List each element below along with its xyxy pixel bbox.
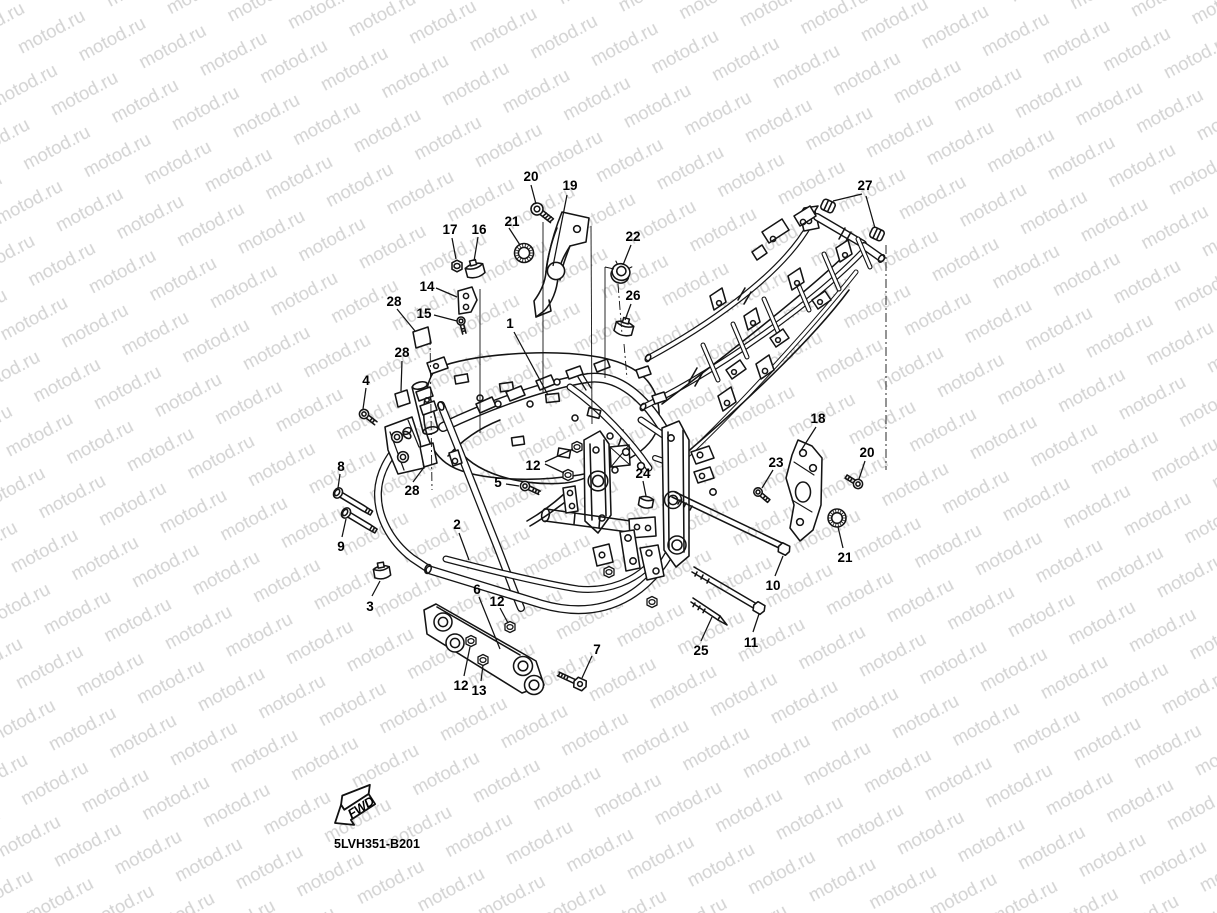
svg-text:20: 20 [859, 445, 874, 460]
svg-text:28: 28 [404, 483, 420, 498]
svg-text:21: 21 [504, 214, 520, 229]
svg-text:17: 17 [442, 222, 457, 237]
svg-text:28: 28 [386, 294, 402, 309]
svg-text:23: 23 [768, 455, 784, 470]
svg-text:11: 11 [744, 635, 759, 650]
svg-text:1: 1 [506, 316, 514, 331]
svg-text:22: 22 [625, 229, 640, 244]
svg-text:3: 3 [366, 599, 374, 614]
svg-text:27: 27 [857, 178, 872, 193]
svg-text:12: 12 [489, 594, 504, 609]
svg-text:14: 14 [419, 279, 435, 294]
svg-text:21: 21 [837, 550, 853, 565]
svg-text:24: 24 [635, 466, 651, 481]
svg-text:12: 12 [525, 458, 540, 473]
svg-text:12: 12 [453, 678, 468, 693]
svg-text:2: 2 [453, 517, 461, 532]
svg-text:10: 10 [765, 578, 780, 593]
svg-text:25: 25 [693, 643, 709, 658]
svg-text:16: 16 [471, 222, 487, 237]
svg-text:4: 4 [362, 373, 370, 388]
svg-text:7: 7 [593, 642, 601, 657]
svg-text:5: 5 [494, 475, 502, 490]
svg-text:6: 6 [473, 582, 481, 597]
svg-text:20: 20 [523, 169, 538, 184]
svg-text:28: 28 [394, 345, 410, 360]
svg-text:9: 9 [337, 539, 345, 554]
svg-text:19: 19 [562, 178, 577, 193]
svg-text:18: 18 [810, 411, 826, 426]
svg-text:8: 8 [337, 459, 345, 474]
svg-text:5LVH351-B201: 5LVH351-B201 [334, 837, 420, 851]
svg-text:26: 26 [625, 288, 641, 303]
svg-text:15: 15 [416, 306, 432, 321]
svg-text:13: 13 [471, 683, 487, 698]
